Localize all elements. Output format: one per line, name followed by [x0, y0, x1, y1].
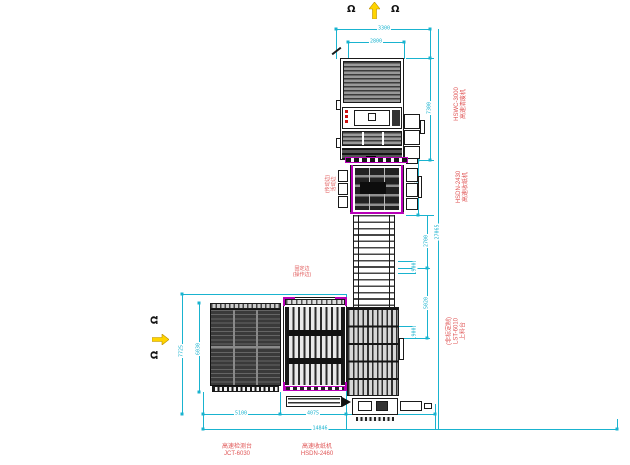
- outfeed-feet: [356, 417, 394, 421]
- hsdn2460-underframe-lines: [288, 398, 340, 405]
- outfeed-unit-box: [376, 401, 388, 411]
- dim-label-left-outer: 7725: [180, 344, 185, 358]
- label-edge-movable-primary: 活动边: [331, 175, 337, 193]
- flow-arrow-icon: [342, 397, 351, 407]
- hsdn2430-right-nub: [418, 176, 422, 198]
- dim-tick: [181, 293, 184, 296]
- dim-label-right-900a: 900: [413, 261, 418, 272]
- label-hsdn2460-name: 高速收纸机: [301, 444, 333, 451]
- hswc-left-tab: [336, 100, 341, 110]
- dim-ext-line: [404, 42, 405, 59]
- machine-lst-body: [347, 307, 399, 396]
- dim-ext-line: [348, 42, 349, 59]
- outfeed-unit-box: [358, 401, 372, 411]
- hsdn2430-right-bracket: [406, 198, 418, 210]
- dim-label-right-mid: 2700: [425, 234, 430, 248]
- hsdn2460-slats: [287, 307, 343, 385]
- dim-label-bottom-1: 5100: [234, 412, 248, 417]
- dim-tick: [434, 413, 437, 416]
- right-arrow-icon: [152, 334, 169, 345]
- label-edge-fixed: 固定边 (操作边): [293, 266, 311, 278]
- dim-tick: [429, 28, 432, 31]
- hsdn2460-cross-band: [287, 358, 343, 364]
- operator-symbol-icon: Ω: [347, 5, 356, 15]
- dim-tick: [347, 41, 350, 44]
- label-lst-note: (非标定制): [447, 317, 454, 345]
- dim-tick: [345, 413, 348, 416]
- label-hsdn2430-model: HSDN-2430: [456, 171, 463, 203]
- label-hswc-name: 高速清废机: [461, 87, 468, 121]
- label-hsdn2460: 高速收纸机 HSDN-2460: [301, 444, 333, 458]
- hswc-indicator-light: [345, 110, 348, 113]
- dim-label-right-lst: 5020: [425, 296, 430, 310]
- hsdn2460-bottom-rail: [285, 386, 345, 391]
- hsdn2430-right-bracket: [406, 168, 418, 182]
- hsdn2430-edge-highlight: [401, 165, 403, 214]
- hsdn2430-left-bracket: [338, 196, 348, 208]
- dim-tick: [198, 302, 201, 305]
- hsdn2430-center-block: [360, 182, 386, 194]
- dim-ext-line: [435, 404, 436, 430]
- dim-tick: [429, 159, 432, 162]
- dim-label-right-900b: 900: [413, 326, 418, 337]
- operator-symbol-icon: Ω: [391, 5, 400, 15]
- hswc-side-unit: [404, 114, 420, 129]
- dim-label-right-total: 27065: [436, 223, 441, 240]
- operator-symbol-icon: Ω: [150, 316, 160, 325]
- dim-label-top-outer: 3300: [377, 27, 391, 32]
- dim-ext-line: [398, 273, 416, 274]
- dim-line: [203, 429, 618, 430]
- label-hsdn2430-name: 高速收纸机: [463, 171, 470, 203]
- dim-tick: [279, 413, 282, 416]
- dim-tick: [403, 41, 406, 44]
- dim-tick: [181, 413, 184, 416]
- label-jct-model: JCT-6030: [222, 451, 252, 458]
- dim-tick: [335, 28, 338, 31]
- dim-tick: [202, 413, 205, 416]
- dim-ext-line: [203, 392, 204, 430]
- operator-symbol-icon: Ω: [150, 351, 160, 360]
- dim-tick: [202, 428, 205, 431]
- label-edge-movable: (传动边) 活动边: [325, 175, 337, 193]
- hswc-panel-button: [368, 113, 376, 121]
- label-hsdn2430: HSDN-2430 高速收纸机: [456, 171, 470, 203]
- conveyor-rail: [389, 215, 390, 308]
- hswc-left-tab: [336, 138, 341, 148]
- hswc-side-nub: [420, 120, 425, 134]
- hsdn2460-corner-highlight: [283, 297, 295, 306]
- dim-ext-line: [336, 29, 337, 59]
- dim-label-right-hswc: 7300: [428, 101, 433, 115]
- label-lst-name: 上料台: [461, 317, 468, 345]
- dim-ext-line: [406, 215, 434, 216]
- hsdn2430-infeed-rail: [345, 157, 408, 163]
- dim-tick: [616, 428, 619, 431]
- jct-feet: [212, 386, 279, 392]
- lst-right-nub: [399, 338, 404, 360]
- dim-line: [182, 294, 346, 295]
- dim-label-left-inner: 6030: [197, 342, 202, 356]
- dim-tick: [426, 337, 429, 340]
- label-hswc: HSWC-3000 高速清废机: [454, 87, 468, 121]
- cad-layout-drawing: Ω Ω Ω Ω: [0, 0, 630, 465]
- hswc-platform-slats: [343, 61, 401, 103]
- hswc-side-unit: [404, 130, 420, 145]
- hswc-slat-gap: [382, 132, 384, 145]
- hsdn2460-corner-highlight: [335, 297, 347, 306]
- label-hswc-model: HSWC-3000: [454, 87, 461, 121]
- up-arrow-icon: [369, 2, 380, 19]
- conveyor-rail: [358, 215, 359, 308]
- hswc-slat-gap: [362, 132, 364, 145]
- hsdn2430-right-bracket: [406, 183, 418, 197]
- label-edge-fixed-secondary: (操作边): [293, 272, 311, 278]
- hswc-lower-slats: [342, 131, 402, 146]
- label-lst-model: LST-6010: [454, 317, 461, 345]
- hsdn2430-left-bracket: [338, 183, 348, 195]
- label-jct: 高速检测台 JCT-6030: [222, 444, 252, 458]
- hsdn2460-cross-band: [287, 330, 343, 336]
- hsdn2430-left-bracket: [338, 170, 348, 182]
- label-hsdn2460-model: HSDN-2460: [301, 451, 333, 458]
- outfeed-side-box: [400, 401, 422, 411]
- dim-label-bottom-2: 4075: [306, 412, 320, 417]
- hsdn2460-right-rail: [341, 307, 345, 385]
- dim-tick: [429, 57, 432, 60]
- dim-label-bottom-total: 14846: [311, 427, 328, 432]
- dim-tick: [426, 267, 429, 270]
- dim-line: [430, 29, 431, 161]
- hsdn2430-edge-highlight: [351, 165, 353, 214]
- hswc-indicator-light: [345, 120, 348, 123]
- hsdn2430-edge-highlight: [350, 212, 404, 214]
- dim-label-top-inner: 2800: [369, 40, 383, 45]
- dim-tick: [417, 214, 420, 217]
- outfeed-side-box: [424, 403, 432, 409]
- hswc-side-block: [392, 110, 400, 126]
- dim-tick: [198, 391, 201, 394]
- hswc-indicator-light: [345, 115, 348, 118]
- hsdn2460-left-rail: [285, 307, 289, 385]
- label-jct-name: 高速检测台: [222, 444, 252, 451]
- jct-row-divider: [211, 346, 280, 348]
- label-lst: (非标定制) LST-6010 上料台: [447, 317, 468, 345]
